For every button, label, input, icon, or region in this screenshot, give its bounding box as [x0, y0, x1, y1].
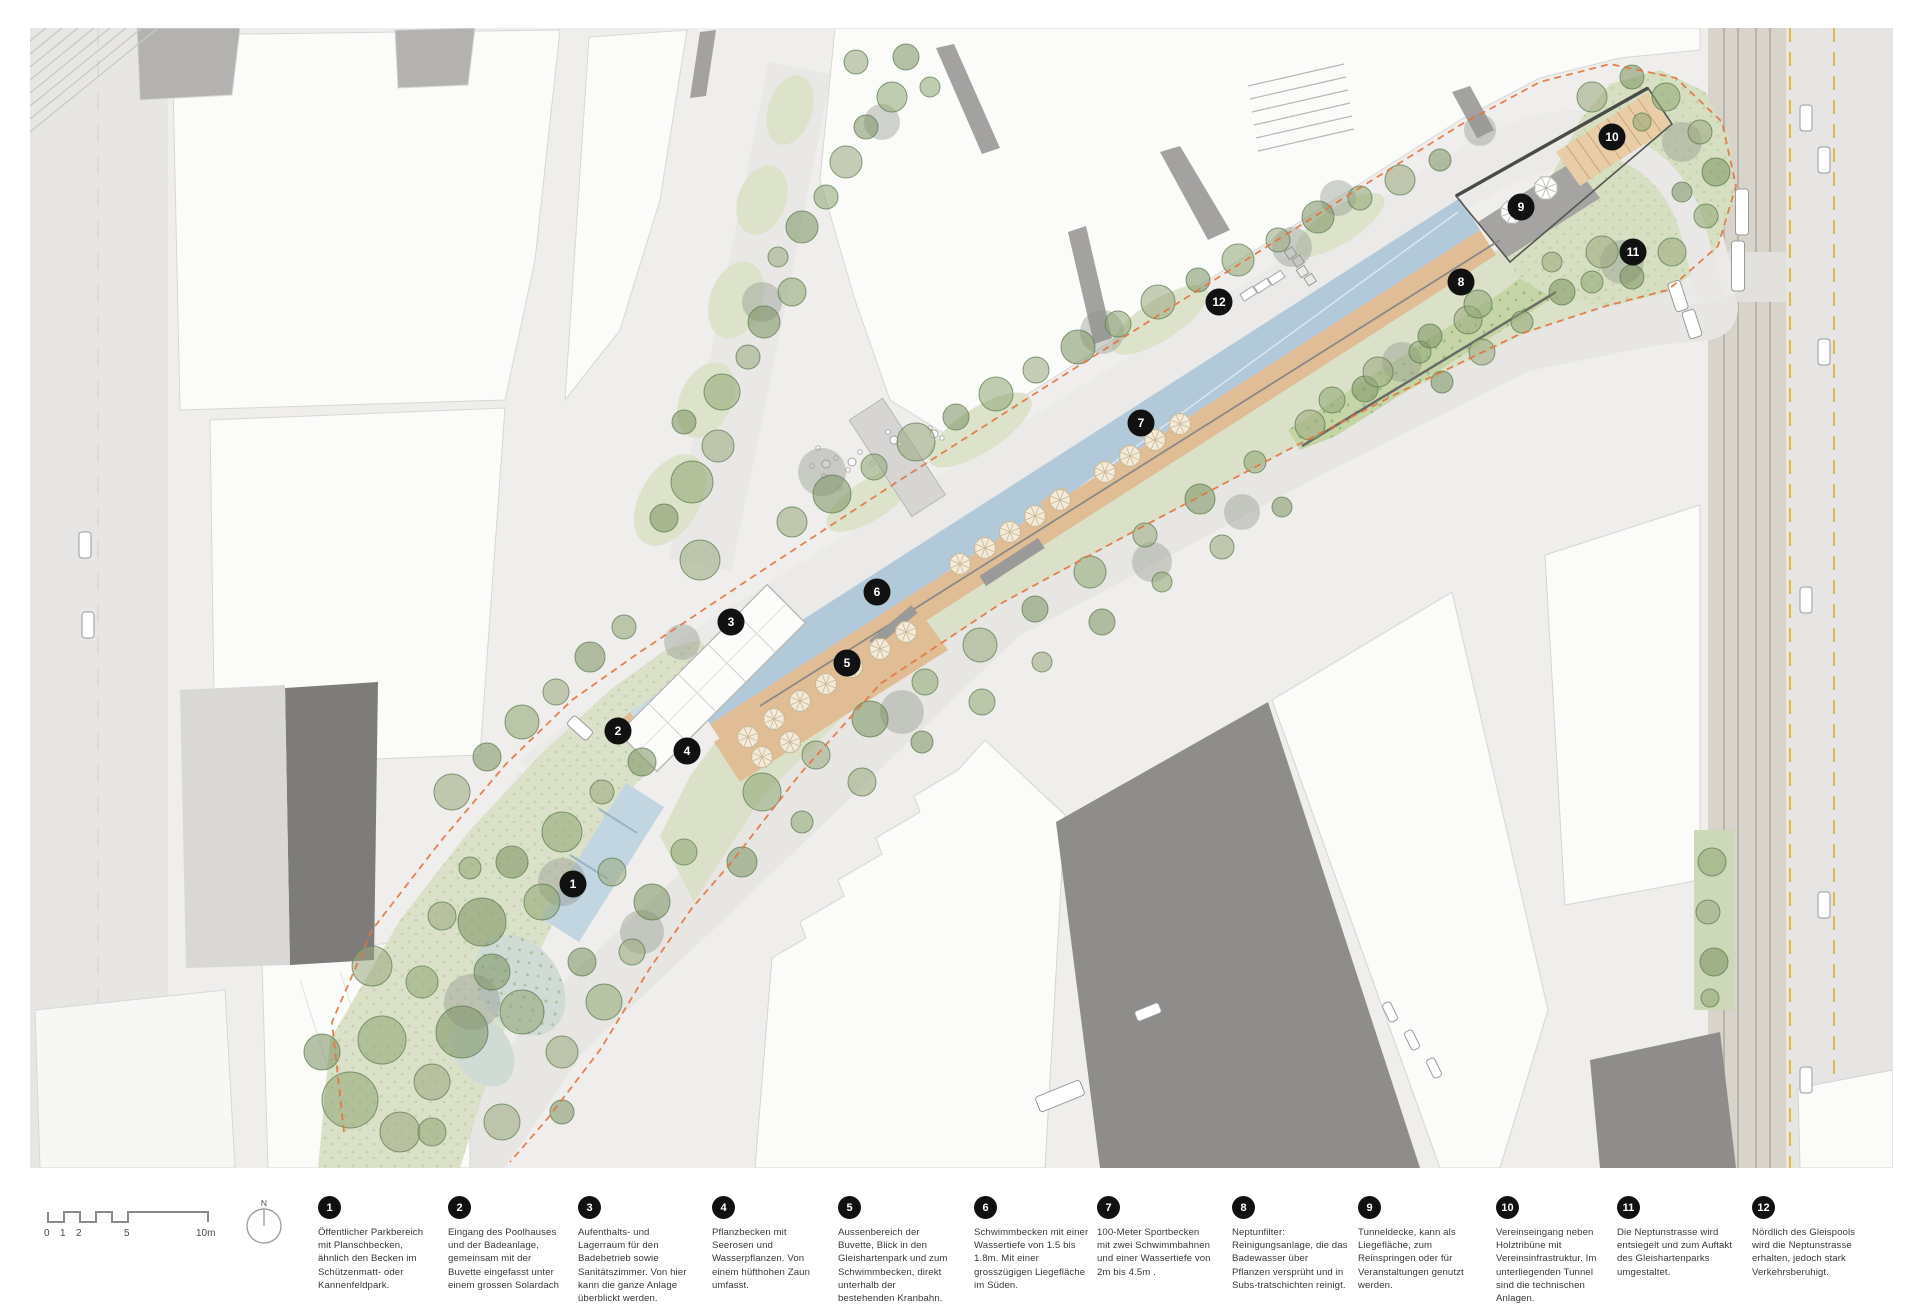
legend-item: 8 Neptunfilter: Reinigungsanlage, die da…	[1232, 1196, 1348, 1292]
vehicle-icon	[1818, 339, 1830, 365]
plan-marker-number: 10	[1605, 130, 1619, 144]
tree	[414, 1064, 450, 1100]
tree	[979, 377, 1013, 411]
vehicle-icon	[1818, 147, 1830, 173]
tree	[1633, 113, 1651, 131]
dark-building-left	[285, 682, 378, 965]
legend-item: 5 Aussenbereich der Buvette, Blick in de…	[838, 1196, 954, 1305]
vehicle-icon	[82, 612, 94, 638]
plan-marker-number: 1	[570, 877, 577, 891]
vehicle-icon	[1736, 189, 1749, 235]
tree	[768, 247, 788, 267]
plan-marker: 11	[1620, 239, 1647, 266]
plan-marker: 7	[1128, 410, 1155, 437]
tree	[1418, 324, 1442, 348]
scale-label: 0	[44, 1228, 50, 1239]
tree	[680, 540, 720, 580]
tree	[813, 475, 851, 513]
tree	[304, 1034, 340, 1070]
tree	[848, 768, 876, 796]
plan-marker-number: 8	[1458, 275, 1465, 289]
chair-icon	[886, 430, 890, 434]
tree	[920, 77, 940, 97]
vehicle-icon	[1800, 587, 1812, 613]
tree	[436, 1006, 488, 1058]
legend-item-number: 1	[318, 1196, 341, 1219]
tree	[322, 1072, 378, 1128]
tree	[543, 679, 569, 705]
vehicle-icon	[1800, 1067, 1812, 1093]
chair-icon	[940, 436, 944, 440]
plan-area: 123456789101112	[0, 0, 1920, 1309]
tree	[428, 902, 456, 930]
legend-item-text: Schwimmbecken mit einer Wassertiefe von …	[974, 1226, 1090, 1292]
tree	[1581, 271, 1603, 293]
tree	[496, 846, 528, 878]
tree-shadow	[1224, 494, 1260, 530]
tree	[406, 966, 438, 998]
legend-item-text: 100-Meter Sportbecken mit zwei Schwimmba…	[1097, 1226, 1213, 1279]
tree	[1511, 311, 1533, 333]
alley-left	[180, 685, 290, 968]
legend-item-text: Die Neptunstrasse wird entsiegelt und zu…	[1617, 1226, 1733, 1279]
tree	[352, 946, 392, 986]
north-symbol: N	[236, 1196, 296, 1256]
tree	[380, 1112, 420, 1152]
tree	[473, 743, 501, 771]
tree	[844, 50, 868, 74]
tree	[1210, 535, 1234, 559]
legend-item-text: Tunneldecke, kann als Liegefläche, zum R…	[1358, 1226, 1474, 1292]
vehicle-icon	[79, 532, 91, 558]
plan-marker: 5	[834, 650, 861, 677]
vehicle-icon	[1800, 105, 1812, 131]
tree	[1431, 371, 1453, 393]
tree	[672, 410, 696, 434]
table-icon	[848, 458, 856, 466]
legend-item-number: 9	[1358, 1196, 1381, 1219]
tree	[358, 1016, 406, 1064]
tree	[1032, 652, 1052, 672]
legend-item: 9 Tunneldecke, kann als Liegefläche, zum…	[1358, 1196, 1474, 1292]
legend-item-number: 3	[578, 1196, 601, 1219]
legend-item-text: Aussenbereich der Buvette, Blick in den …	[838, 1226, 954, 1305]
tree	[786, 211, 818, 243]
tree	[650, 504, 678, 532]
tree	[852, 701, 888, 737]
scale-label: 1	[60, 1228, 66, 1239]
tree	[912, 669, 938, 695]
tree	[1186, 268, 1210, 292]
tree	[897, 423, 935, 461]
scale-label: 2	[76, 1228, 82, 1239]
tree	[893, 44, 919, 70]
tree	[546, 1036, 578, 1068]
tree	[1672, 182, 1692, 202]
legend-item: 12 Nördlich des Gleispools wird die Nept…	[1752, 1196, 1868, 1279]
tree	[1244, 451, 1266, 473]
legend-item-number: 10	[1496, 1196, 1519, 1219]
legend-item-text: Aufenthalts- und Lagerraum für den Badeb…	[578, 1226, 694, 1305]
plan-marker: 3	[718, 609, 745, 636]
tree	[1319, 387, 1345, 413]
tree	[1694, 204, 1718, 228]
tree	[861, 454, 887, 480]
tree	[877, 82, 907, 112]
tree	[1023, 357, 1049, 383]
legend-item-text: Eingang des Poolhauses und der Badeanlag…	[448, 1226, 564, 1292]
tree	[1701, 989, 1719, 1007]
legend-item-number: 7	[1097, 1196, 1120, 1219]
tree	[1577, 82, 1607, 112]
legend-item-text: Vereinseingang neben Holztribüne mit Ver…	[1496, 1226, 1612, 1305]
legend-item-number: 4	[712, 1196, 735, 1219]
tree	[542, 812, 582, 852]
plan-marker: 8	[1448, 269, 1475, 296]
tree	[459, 857, 481, 879]
plan-marker: 2	[605, 718, 632, 745]
tree	[1702, 158, 1730, 186]
tree	[550, 1100, 574, 1124]
tree	[1688, 120, 1712, 144]
chair-icon	[846, 468, 850, 472]
tree	[911, 731, 933, 753]
plan-marker-number: 6	[874, 585, 881, 599]
legend-item-number: 5	[838, 1196, 861, 1219]
plan-marker-number: 9	[1518, 200, 1525, 214]
tree	[1089, 609, 1115, 635]
tree	[1429, 149, 1451, 171]
tree	[1185, 484, 1215, 514]
tree	[590, 780, 614, 804]
plan-marker: 4	[674, 738, 701, 765]
legend-item-text: Neptunfilter: Reinigungsanlage, die das …	[1232, 1226, 1348, 1292]
tree	[1133, 523, 1157, 547]
tree	[748, 306, 780, 338]
site-plan-page: 123456789101112 012510m N 1 Öffentlicher…	[0, 0, 1920, 1309]
legend-item-number: 8	[1232, 1196, 1255, 1219]
plan-marker-number: 7	[1138, 416, 1145, 430]
plan-marker: 9	[1508, 194, 1535, 221]
tree	[628, 748, 656, 776]
legend-item-text: Öffentlicher Parkbereich mit Planschbeck…	[318, 1226, 434, 1292]
tree	[1586, 236, 1618, 268]
tree	[434, 774, 470, 810]
legend-item-number: 12	[1752, 1196, 1775, 1219]
tree	[671, 839, 697, 865]
legend-item: 6 Schwimmbecken mit einer Wassertiefe vo…	[974, 1196, 1090, 1292]
tree	[1141, 285, 1175, 319]
tree	[575, 642, 605, 672]
legend-item: 11 Die Neptunstrasse wird entsiegelt und…	[1617, 1196, 1733, 1279]
chair-icon	[858, 450, 862, 454]
tree	[1302, 201, 1334, 233]
tree	[943, 404, 969, 430]
tree	[1652, 83, 1680, 111]
tree	[1620, 65, 1644, 89]
tree	[1363, 357, 1393, 387]
legend-item: 3 Aufenthalts- und Lagerraum für den Bad…	[578, 1196, 694, 1305]
legend-item-number: 6	[974, 1196, 997, 1219]
plan-marker: 10	[1599, 124, 1626, 151]
tree	[1105, 311, 1131, 337]
tree	[458, 898, 506, 946]
tree	[1061, 330, 1095, 364]
plan-marker-number: 4	[684, 744, 691, 758]
north-label: N	[261, 1198, 267, 1208]
tree	[586, 984, 622, 1020]
tree	[777, 507, 807, 537]
tree	[474, 954, 510, 990]
legend-item-number: 2	[448, 1196, 471, 1219]
tree	[1022, 596, 1048, 622]
tree	[568, 948, 596, 976]
tree-shadow	[1464, 114, 1496, 146]
tree	[634, 884, 670, 920]
tree	[1549, 279, 1575, 305]
tree	[727, 847, 757, 877]
site-plan-drawing: 123456789101112	[0, 0, 1920, 1309]
tree	[1620, 265, 1644, 289]
legend-item: 4 Pflanzbecken mit Seerosen und Wasserpf…	[712, 1196, 828, 1292]
tree	[1696, 900, 1720, 924]
plan-marker-number: 12	[1212, 295, 1226, 309]
tree	[791, 811, 813, 833]
plan-marker-number: 2	[615, 724, 622, 738]
plan-marker: 12	[1206, 289, 1233, 316]
tree	[736, 345, 760, 369]
tree	[1272, 497, 1292, 517]
tree	[612, 615, 636, 639]
tree	[524, 884, 560, 920]
tree	[1464, 290, 1492, 318]
tree	[671, 461, 713, 503]
left-street	[30, 28, 168, 1168]
tree	[1348, 186, 1372, 210]
tree-shadow	[664, 624, 700, 660]
tree	[830, 146, 862, 178]
tree	[854, 115, 878, 139]
plan-marker-number: 11	[1627, 245, 1640, 259]
plan-marker-number: 5	[844, 656, 851, 670]
vehicle-icon	[1732, 241, 1745, 291]
vehicle-icon	[1818, 892, 1830, 918]
legend-item-number: 11	[1617, 1196, 1640, 1219]
tree	[484, 1104, 520, 1140]
tree	[702, 430, 734, 462]
tree	[963, 628, 997, 662]
plan-marker: 6	[864, 579, 891, 606]
tree	[619, 939, 645, 965]
tree	[598, 858, 626, 886]
legend-item-text: Pflanzbecken mit Seerosen und Wasserpfla…	[712, 1226, 828, 1292]
tree	[704, 374, 740, 410]
legend-item-text: Nördlich des Gleispools wird die Neptuns…	[1752, 1226, 1868, 1279]
tree	[500, 990, 544, 1034]
tree	[814, 185, 838, 209]
tree	[1152, 572, 1172, 592]
legend-item: 7 100-Meter Sportbecken mit zwei Schwimm…	[1097, 1196, 1213, 1279]
scale-label: 5	[124, 1228, 130, 1239]
tree	[1542, 252, 1562, 272]
tree	[1658, 238, 1686, 266]
legend-item: 2 Eingang des Poolhauses und der Badeanl…	[448, 1196, 564, 1292]
tree	[969, 689, 995, 715]
tree	[1295, 410, 1325, 440]
tree	[1700, 948, 1728, 976]
tree	[778, 278, 806, 306]
tree	[505, 705, 539, 739]
legend-item: 10 Vereinseingang neben Holztribüne mit …	[1496, 1196, 1612, 1305]
plan-marker: 1	[560, 871, 587, 898]
plan-marker-number: 3	[728, 615, 735, 629]
tree	[418, 1118, 446, 1146]
tree	[1698, 848, 1726, 876]
legend-item: 1 Öffentlicher Parkbereich mit Planschbe…	[318, 1196, 434, 1292]
scale-label: 10m	[196, 1228, 215, 1239]
